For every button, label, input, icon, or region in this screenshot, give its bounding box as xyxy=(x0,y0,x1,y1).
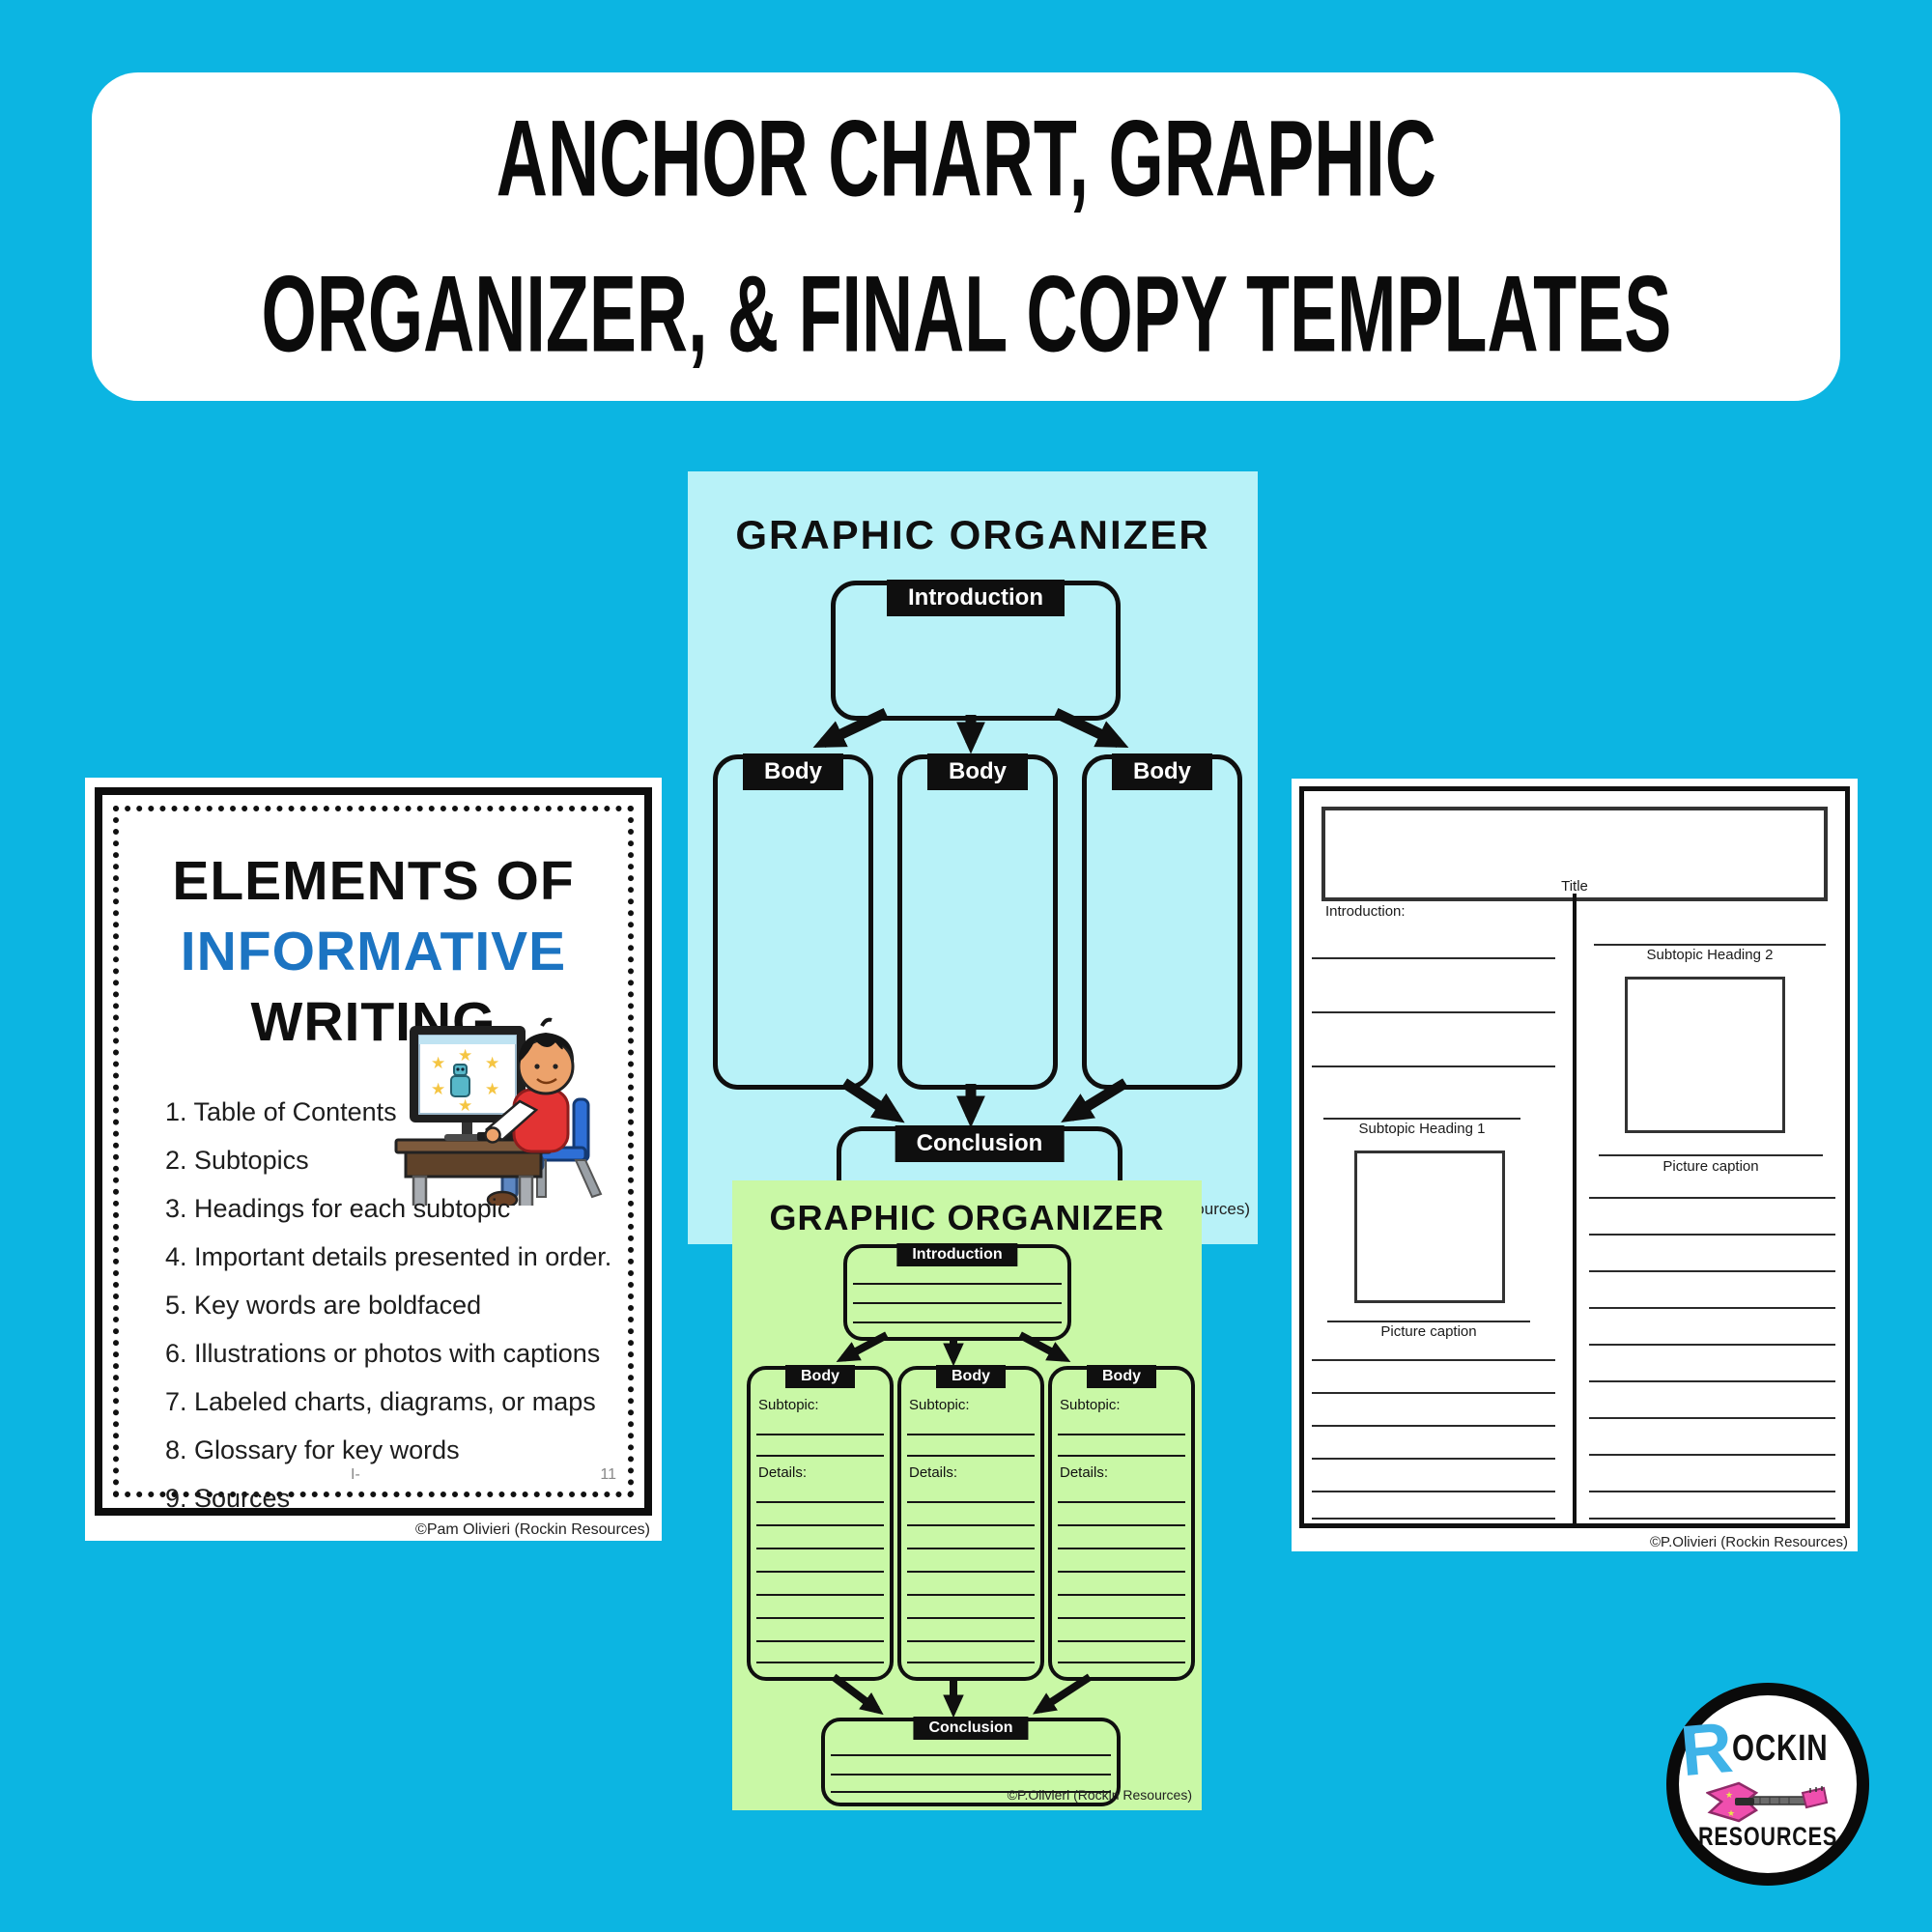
subtopic-field-label: Subtopic: xyxy=(909,1397,970,1413)
green-organizer-title: GRAPHIC ORGANIZER xyxy=(732,1198,1202,1238)
cyan-organizer-title: GRAPHIC ORGANIZER xyxy=(688,512,1258,558)
cyan-body-label-2: Body xyxy=(927,753,1028,790)
cyan-body-box-1: Body xyxy=(713,754,873,1090)
details-field-label: Details: xyxy=(1060,1464,1108,1481)
cyan-body-label-1: Body xyxy=(743,753,843,790)
subtopic-field-label: Subtopic: xyxy=(1060,1397,1121,1413)
green-copyright: ©P.Olivieri (Rockin Resources) xyxy=(1008,1787,1192,1803)
list-item: 7. Labeled charts, diagrams, or maps xyxy=(165,1378,611,1426)
subtopic-field-label: Subtopic: xyxy=(758,1397,819,1413)
final-picture-caption-2: Picture caption xyxy=(1599,1158,1823,1175)
svg-text:★: ★ xyxy=(485,1054,499,1072)
green-body-box-1: Body Subtopic: Details: xyxy=(747,1366,894,1681)
final-introduction-label: Introduction: xyxy=(1325,903,1406,920)
column-divider xyxy=(1573,894,1577,1523)
green-body-box-2: Body Subtopic: Details: xyxy=(897,1366,1044,1681)
final-picture-caption-1: Picture caption xyxy=(1327,1323,1530,1340)
cyan-conclusion-label: Conclusion xyxy=(895,1125,1065,1162)
list-item: 4. Important details presented in order. xyxy=(165,1233,611,1281)
graphic-organizer-cyan-page: GRAPHIC ORGANIZER Introduction Body Body… xyxy=(688,471,1258,1244)
list-item: 5. Key words are boldfaced xyxy=(165,1281,611,1329)
rockin-resources-logo: R OCKIN ★ ★ RESOURCES xyxy=(1666,1683,1869,1886)
anchor-chart-dotted-border: ELEMENTS OF INFORMATIVE WRITING xyxy=(113,806,634,1497)
green-body-box-3: Body Subtopic: Details: xyxy=(1048,1366,1195,1681)
final-subtopic-heading-2: Subtopic Heading 2 xyxy=(1594,947,1826,963)
anchor-copyright: ©Pam Olivieri (Rockin Resources) xyxy=(415,1521,650,1539)
anchor-chart-page: ELEMENTS OF INFORMATIVE WRITING xyxy=(85,778,662,1541)
details-field-label: Details: xyxy=(758,1464,807,1481)
cyan-introduction-label: Introduction xyxy=(887,580,1065,616)
anchor-title-line1: ELEMENTS OF xyxy=(119,846,628,917)
graphic-organizer-green-page: GRAPHIC ORGANIZER Introduction Body Subt… xyxy=(732,1180,1202,1810)
final-title-label: Title xyxy=(1325,878,1824,895)
green-body-label-2: Body xyxy=(936,1365,1006,1388)
logo-ockin-text: OCKIN xyxy=(1732,1728,1828,1770)
list-item: 2. Subtopics xyxy=(165,1136,611,1184)
list-item: 9. Sources xyxy=(165,1474,611,1522)
green-introduction-label: Introduction xyxy=(896,1243,1017,1266)
logo-resources-text: RESOURCES xyxy=(1698,1822,1837,1852)
final-subtopic-heading-1: Subtopic Heading 1 xyxy=(1323,1121,1520,1137)
svg-text:★: ★ xyxy=(1725,1790,1733,1800)
final-copyright: ©P.Olivieri (Rockin Resources) xyxy=(1650,1534,1848,1550)
logo-letter-r: R xyxy=(1678,1718,1734,1779)
svg-text:★: ★ xyxy=(1727,1808,1735,1818)
cyan-body-label-3: Body xyxy=(1112,753,1212,790)
list-item: 6. Illustrations or photos with captions xyxy=(165,1329,611,1378)
list-item: 1. Table of Contents xyxy=(165,1088,611,1136)
anchor-chart-list: 1. Table of Contents 2. Subtopics 3. Hea… xyxy=(165,1088,611,1522)
anchor-footer-left: I- xyxy=(351,1466,360,1484)
cyan-body-box-2: Body xyxy=(897,754,1058,1090)
anchor-title-line2: INFORMATIVE xyxy=(119,917,628,987)
green-introduction-box: Introduction xyxy=(843,1244,1071,1341)
list-item: 3. Headings for each subtopic xyxy=(165,1184,611,1233)
anchor-footer-page-number: 11 xyxy=(600,1466,616,1484)
title-banner: ANCHOR CHART, GRAPHIC ORGANIZER, & FINAL… xyxy=(92,72,1840,401)
final-copy-template-page: Title Introduction: Subtopic Heading 1 P… xyxy=(1292,779,1858,1551)
svg-text:★: ★ xyxy=(431,1054,445,1072)
main-title-line2: ORGANIZER, & FINAL COPY TEMPLATES xyxy=(261,237,1671,392)
main-title: ANCHOR CHART, GRAPHIC ORGANIZER, & FINAL… xyxy=(261,81,1671,392)
svg-text:★: ★ xyxy=(458,1046,472,1065)
anchor-chart-frame: ELEMENTS OF INFORMATIVE WRITING xyxy=(95,787,652,1516)
logo-wordmark-top: R OCKIN xyxy=(1681,1719,1856,1779)
final-title-box: Title xyxy=(1321,807,1828,901)
final-picture-box-2 xyxy=(1625,977,1785,1133)
cyan-introduction-box: Introduction xyxy=(831,581,1121,721)
details-field-label: Details: xyxy=(909,1464,957,1481)
green-body-label-1: Body xyxy=(785,1365,855,1388)
cyan-body-box-3: Body xyxy=(1082,754,1242,1090)
green-body-label-3: Body xyxy=(1087,1365,1156,1388)
final-picture-box-1 xyxy=(1354,1151,1505,1303)
final-template-frame: Title Introduction: Subtopic Heading 1 P… xyxy=(1299,786,1850,1528)
main-title-line1: ANCHOR CHART, GRAPHIC xyxy=(261,81,1671,237)
list-item: 8. Glossary for key words xyxy=(165,1426,611,1474)
green-conclusion-label: Conclusion xyxy=(913,1717,1028,1740)
